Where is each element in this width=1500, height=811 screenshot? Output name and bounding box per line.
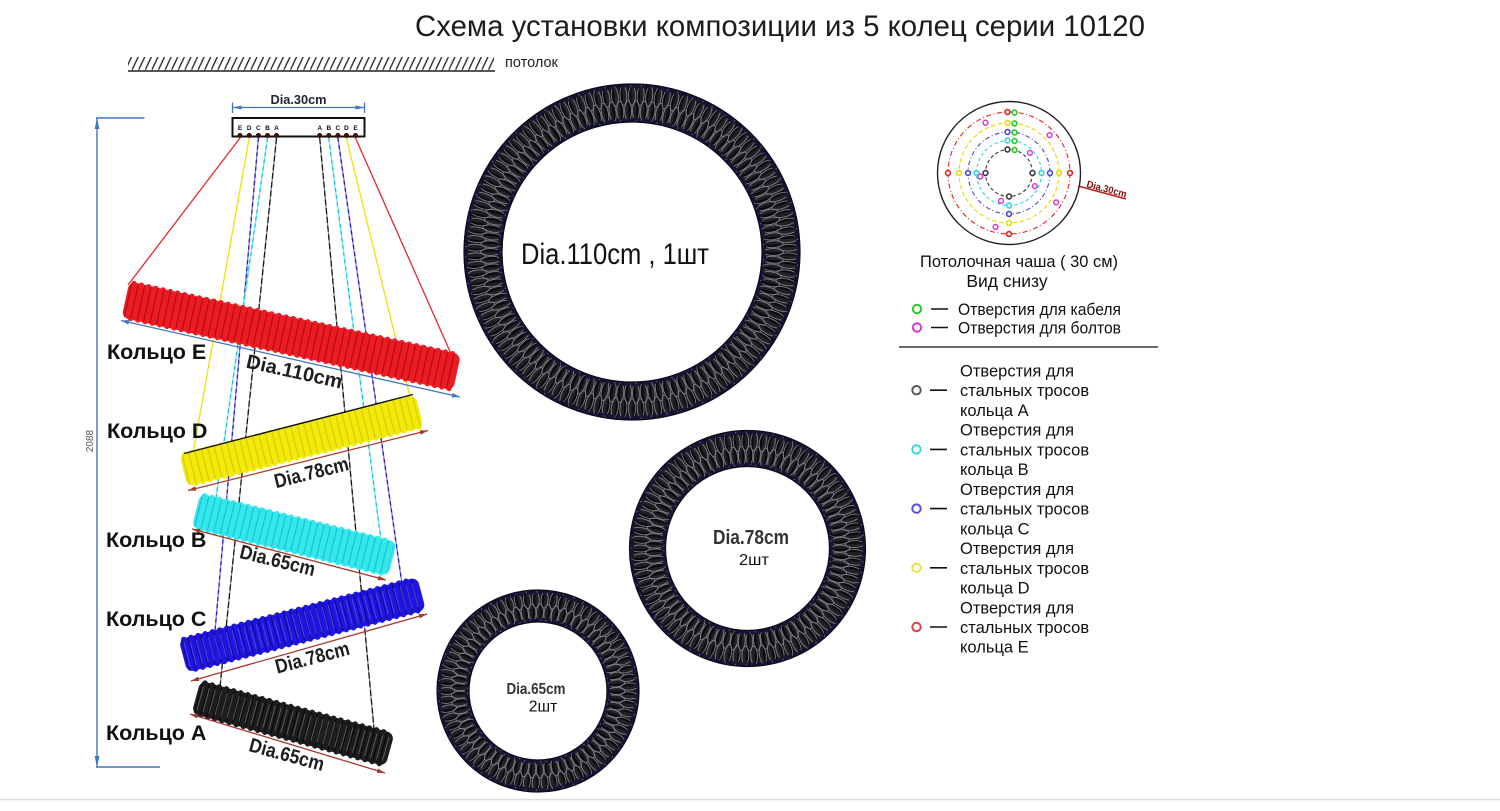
svg-text:Dia.110cm , 1шт: Dia.110cm , 1шт (521, 238, 709, 271)
svg-text:Dia.30cm: Dia.30cm (1085, 179, 1128, 200)
svg-text:Кольцо B: Кольцо B (106, 528, 206, 552)
svg-text:стальных тросов: стальных тросов (960, 382, 1089, 400)
svg-text:стальных тросов: стальных тросов (960, 560, 1089, 578)
svg-text:стальных тросов: стальных тросов (960, 441, 1089, 459)
svg-text:E: E (353, 125, 358, 132)
svg-text:Кольцо A: Кольцо A (106, 721, 206, 745)
svg-text:стальных тросов: стальных тросов (960, 619, 1089, 637)
svg-text:B: B (265, 125, 270, 132)
svg-text:кольца B: кольца B (960, 461, 1029, 479)
svg-text:Потолочная чаша ( 30 см): Потолочная чаша ( 30 см) (920, 252, 1118, 271)
svg-text:C: C (336, 125, 341, 132)
svg-text:стальных тросов: стальных тросов (960, 501, 1089, 519)
svg-text:Кольцо C: Кольцо C (106, 607, 206, 631)
svg-text:D: D (344, 125, 349, 132)
svg-text:A: A (317, 125, 322, 132)
svg-text:Отверстия для: Отверстия для (960, 540, 1074, 558)
svg-text:Отверстия для: Отверстия для (960, 599, 1074, 617)
svg-text:2шт: 2шт (739, 552, 770, 569)
svg-text:Схема установки композиции из: Схема установки композиции из 5 колец се… (415, 10, 1145, 43)
svg-text:кольца D: кольца D (960, 580, 1030, 598)
svg-text:Dia.30cm: Dia.30cm (271, 92, 327, 107)
svg-text:E: E (238, 125, 243, 132)
svg-text:Dia.65cm: Dia.65cm (507, 681, 566, 698)
svg-text:Вид снизу: Вид снизу (966, 271, 1048, 291)
svg-text:2шт: 2шт (529, 699, 558, 716)
svg-text:Отверстия для болтов: Отверстия для болтов (958, 320, 1121, 338)
svg-text:Кольцо D: Кольцо D (107, 419, 207, 443)
svg-text:B: B (326, 125, 331, 132)
svg-text:потолок: потолок (505, 55, 559, 71)
svg-text:Отверстия для: Отверстия для (960, 422, 1074, 440)
svg-text:Отверстия для: Отверстия для (960, 481, 1074, 499)
svg-text:кольца C: кольца C (960, 520, 1030, 538)
svg-text:Отверстия для кабеля: Отверстия для кабеля (958, 301, 1121, 319)
svg-text:кольца A: кольца A (960, 402, 1029, 420)
svg-text:A: A (274, 125, 279, 132)
svg-text:Кольцо E: Кольцо E (107, 340, 206, 364)
svg-text:C: C (256, 125, 261, 132)
svg-text:2088: 2088 (85, 429, 96, 452)
svg-text:Отверстия для: Отверстия для (960, 363, 1074, 381)
svg-text:D: D (247, 125, 252, 132)
svg-text:кольца E: кольца E (960, 639, 1029, 657)
svg-text:Dia.78cm: Dia.78cm (713, 527, 789, 549)
